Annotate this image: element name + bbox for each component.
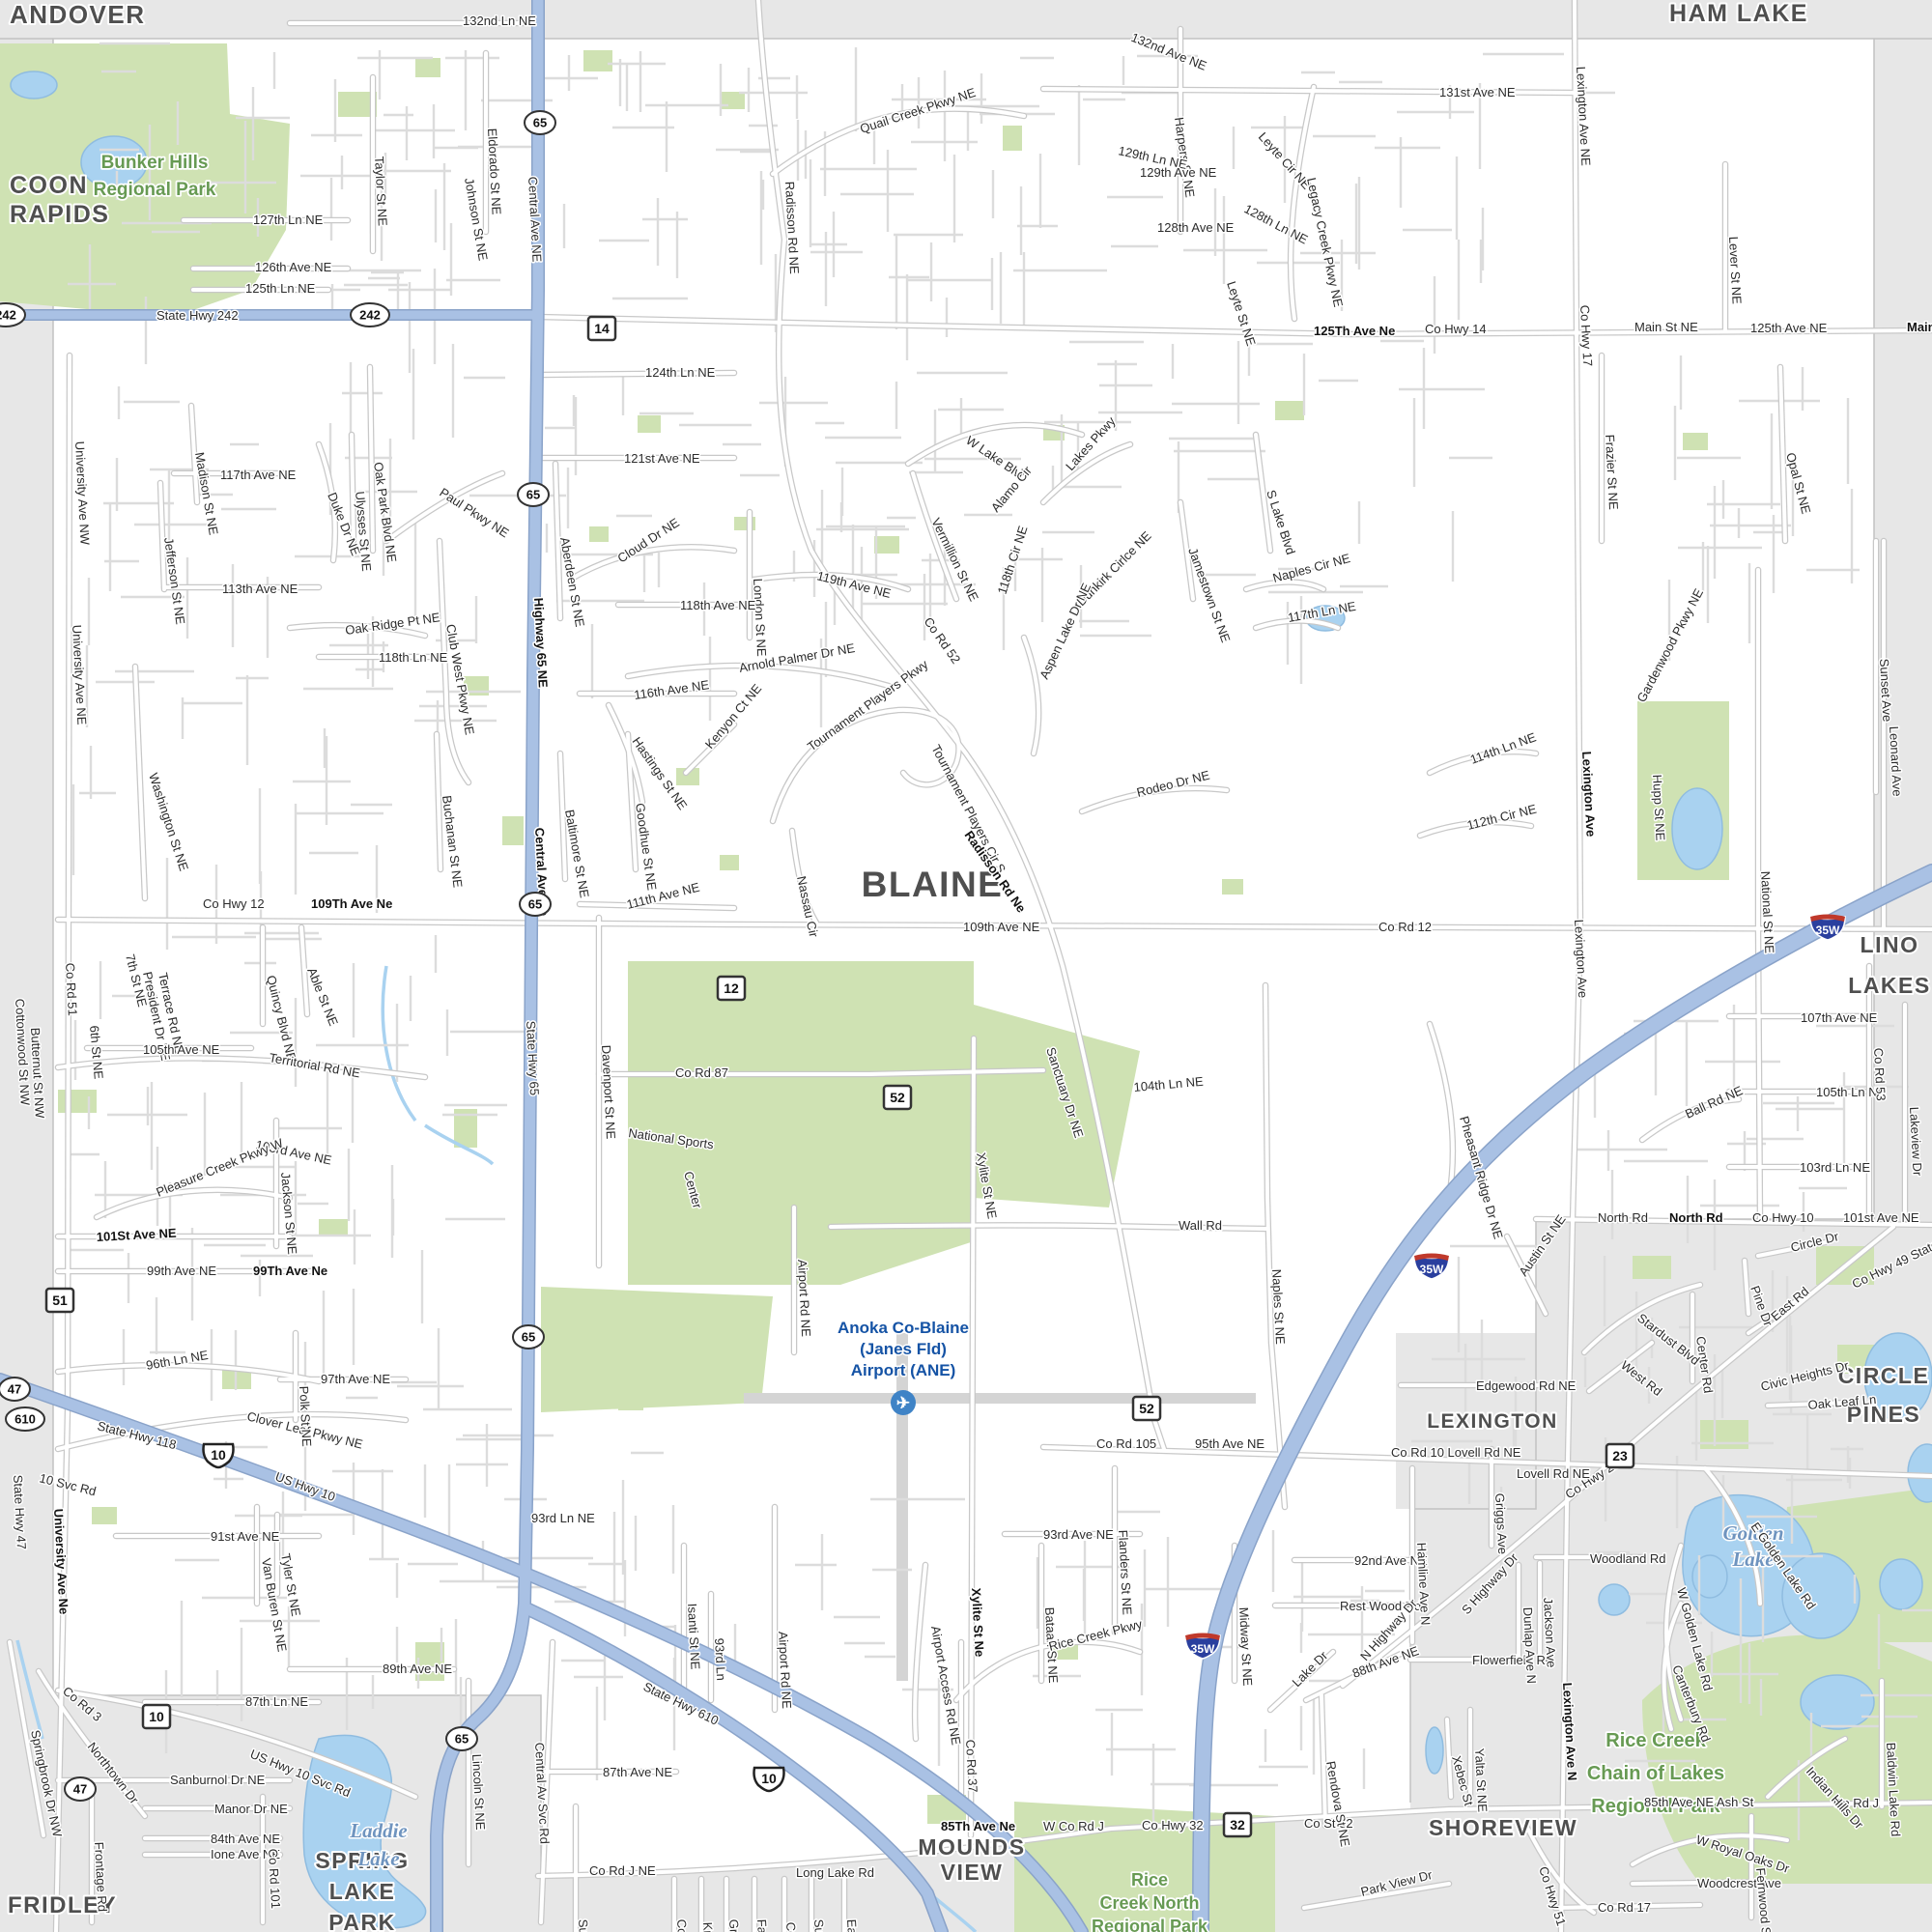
road-label: 84th Ave NE: [211, 1832, 280, 1846]
city-label: HAM LAKE: [1669, 0, 1808, 27]
city-label: VIEW: [941, 1860, 1004, 1885]
park-label: Creek North: [1099, 1893, 1199, 1913]
svg-text:65: 65: [455, 1732, 469, 1747]
road-label: Co Rd 37: [963, 1739, 980, 1793]
road-label: 93rd Ln: [712, 1637, 728, 1681]
park-label: Rice Creek: [1605, 1730, 1706, 1751]
city-label: SHOREVIEW: [1429, 1815, 1577, 1840]
road-label: Main St: [1907, 320, 1932, 334]
state-hwy-shield: 47: [65, 1777, 96, 1801]
airplane-glyph: ✈: [896, 1394, 910, 1412]
road-label: 99Th Ave Ne: [253, 1264, 327, 1278]
road-label: Co Rd 105: [1096, 1436, 1156, 1451]
city-label: LINO: [1861, 932, 1919, 957]
road-label: Flowerfield Rd: [1472, 1653, 1552, 1667]
state-hwy-shield: 47: [0, 1378, 30, 1401]
airport-label: Airport (ANE): [851, 1361, 956, 1379]
svg-text:10: 10: [761, 1771, 777, 1786]
state-hwy-shield: 65: [446, 1727, 477, 1750]
road-label: 95th Ave NE: [1195, 1436, 1264, 1451]
road-label: 93rd Ln NE: [531, 1511, 595, 1525]
county-road-shield: 12: [718, 977, 745, 1000]
svg-text:51: 51: [52, 1293, 68, 1308]
road-label: Co Rd 17: [1598, 1900, 1651, 1915]
road-label: 125th Ln NE: [245, 281, 316, 296]
road-label: 109th Ave NE: [963, 920, 1040, 934]
park-label: Rice: [1131, 1870, 1168, 1889]
road-label: 89th Ave NE: [383, 1662, 452, 1676]
city-label: LAKES: [1848, 973, 1930, 998]
road-label: 128th Ave NE: [1157, 220, 1235, 235]
road-label: Co Hwy 32: [1142, 1818, 1204, 1833]
city-label: LEXINGTON: [1427, 1410, 1558, 1433]
county-road-shield: 32: [1224, 1813, 1251, 1836]
road-label: Manor Dr NE: [214, 1802, 288, 1816]
city-label: CIRCLE: [1838, 1363, 1930, 1388]
county-road-shield: 10: [143, 1705, 170, 1728]
road-label: 127th Ln NE: [253, 213, 324, 227]
svg-text:65: 65: [528, 897, 542, 912]
county-road-shield: 52: [1133, 1397, 1160, 1420]
svg-text:35W: 35W: [1191, 1642, 1215, 1656]
svg-text:47: 47: [8, 1382, 21, 1397]
road-label: Co Hwy 10: [1752, 1210, 1814, 1225]
road-label: 129th Ave NE: [1140, 165, 1217, 180]
road-label: Wall Rd: [1179, 1218, 1222, 1233]
road-label: Co Hwy 12: [203, 896, 265, 911]
park-label: Chain of Lakes: [1587, 1763, 1724, 1784]
county-road-shield: 51: [46, 1289, 73, 1312]
road-label: Lovell Rd NE: [1517, 1466, 1590, 1481]
city-label: MOUNDS: [918, 1834, 1025, 1860]
road-label: Co Rd 87: [675, 1065, 728, 1080]
svg-text:10: 10: [149, 1709, 164, 1724]
road-label: Co Hwy 14: [1425, 322, 1487, 336]
svg-text:65: 65: [533, 116, 547, 130]
state-hwy-shield: 65: [518, 483, 549, 506]
county-road-shield: 52: [884, 1086, 911, 1109]
city-label: RAPIDS: [10, 201, 109, 228]
state-hwy-shield: 610: [6, 1407, 44, 1431]
county-road-shield: 23: [1606, 1444, 1634, 1467]
road-label: 99th Ave NE: [147, 1264, 216, 1278]
road-label: 85th Ave NE Ash St: [1644, 1795, 1754, 1809]
road-label: 109Th Ave Ne: [311, 896, 392, 911]
svg-text:610: 610: [14, 1412, 36, 1427]
road-label: North Rd: [1669, 1210, 1723, 1225]
road-label: 118th Ave NE: [680, 598, 756, 612]
road-label: 118th Ln NE: [379, 650, 448, 665]
road-label: Woodland Rd: [1590, 1551, 1666, 1566]
road-label: 113th Ave NE: [222, 582, 298, 596]
road-label: Co Rd 10 Lovell Rd NE: [1391, 1445, 1521, 1460]
road-label: Sanburnol Dr NE: [170, 1773, 266, 1787]
state-hwy-shield: 65: [513, 1325, 544, 1349]
road-label: Co Rd 126: [783, 1921, 801, 1932]
road-label: North Rd: [1598, 1210, 1648, 1225]
lake-label: Laddie: [349, 1819, 407, 1842]
road-label: 117th Ave NE: [220, 468, 297, 482]
park-label: Bunker Hills: [101, 153, 209, 173]
road-label: 124th Ln NE: [645, 365, 716, 380]
svg-text:242: 242: [359, 308, 381, 323]
svg-text:47: 47: [73, 1782, 87, 1797]
road-label: 131st Ave NE: [1439, 85, 1516, 99]
road-label: 125Th Ave Ne: [1314, 324, 1395, 338]
road-label: Main St NE: [1634, 320, 1698, 334]
airport-label: Anoka Co-Blaine: [838, 1319, 969, 1337]
svg-text:14: 14: [594, 321, 610, 336]
road-label: 85Th Ave Ne: [941, 1819, 1015, 1833]
state-hwy-shield: 65: [525, 111, 555, 134]
map-canvas[interactable]: ANDOVERCOONRAPIDSHAM LAKEBLAINELINOLAKES…: [0, 0, 1932, 1932]
city-label: PARK: [328, 1910, 395, 1932]
road-label: 132nd Ln NE: [463, 14, 536, 28]
svg-text:35W: 35W: [1420, 1263, 1444, 1276]
svg-text:65: 65: [526, 488, 540, 502]
road-label: Co Rd 51: [63, 962, 80, 1016]
road-label: Co Rd 12: [1378, 920, 1432, 934]
city-label: COON: [10, 172, 88, 199]
state-hwy-shield: 242: [351, 303, 389, 327]
svg-text:32: 32: [1230, 1817, 1245, 1833]
road-label: Fairchild Ave: [754, 1918, 773, 1932]
city-label: LAKE: [329, 1879, 396, 1904]
road-label: Co Rd 53: [1871, 1047, 1889, 1101]
svg-text:23: 23: [1612, 1448, 1628, 1463]
state-hwy-shield: 65: [520, 893, 551, 916]
svg-text:52: 52: [1139, 1401, 1154, 1416]
road-label: 121st Ave NE: [624, 451, 700, 466]
road-label: Co Rd J NE: [589, 1863, 656, 1878]
city-label: ANDOVER: [10, 0, 146, 29]
map-viewport[interactable]: ANDOVERCOONRAPIDSHAM LAKEBLAINELINOLAKES…: [0, 0, 1932, 1932]
svg-text:65: 65: [522, 1330, 535, 1345]
road-label: 101st Ave NE: [1843, 1210, 1919, 1225]
road-label: 107th Ave NE: [1801, 1010, 1878, 1025]
svg-text:52: 52: [890, 1090, 905, 1105]
road-label: 126th Ave NE: [255, 260, 332, 274]
road-label: W Co Rd J: [1043, 1819, 1104, 1833]
road-label: State Hwy 242: [156, 308, 239, 323]
road-label: 93rd Ave NE: [1043, 1527, 1114, 1542]
road-label: 91st Ave NE: [211, 1529, 280, 1544]
road-label: Edgewood Rd NE: [1476, 1378, 1577, 1393]
svg-text:12: 12: [724, 980, 739, 996]
city-label: BLAINE: [862, 865, 1004, 904]
road-label: Long Lake Rd: [796, 1865, 874, 1880]
airport-label: (Janes Fld): [860, 1340, 947, 1358]
road-label: 97th Ave NE: [321, 1372, 390, 1386]
county-road-shield: 14: [588, 317, 615, 340]
road-label: Co Rd 125: [674, 1918, 692, 1932]
park-label: Regional Park: [94, 180, 216, 200]
svg-text:10: 10: [211, 1447, 226, 1463]
svg-text:35W: 35W: [1816, 923, 1840, 937]
road-label: 103rd Ln NE: [1800, 1160, 1870, 1175]
road-label: 125th Ave NE: [1750, 321, 1828, 335]
road-label: 87th Ave NE: [603, 1765, 672, 1779]
svg-text:242: 242: [0, 308, 16, 323]
road-label: 87th Ln NE: [245, 1694, 308, 1709]
lake-label: Lake: [356, 1847, 399, 1870]
park-label: Regional Park: [1092, 1917, 1208, 1932]
road-label: 105th Ave NE: [143, 1042, 220, 1057]
